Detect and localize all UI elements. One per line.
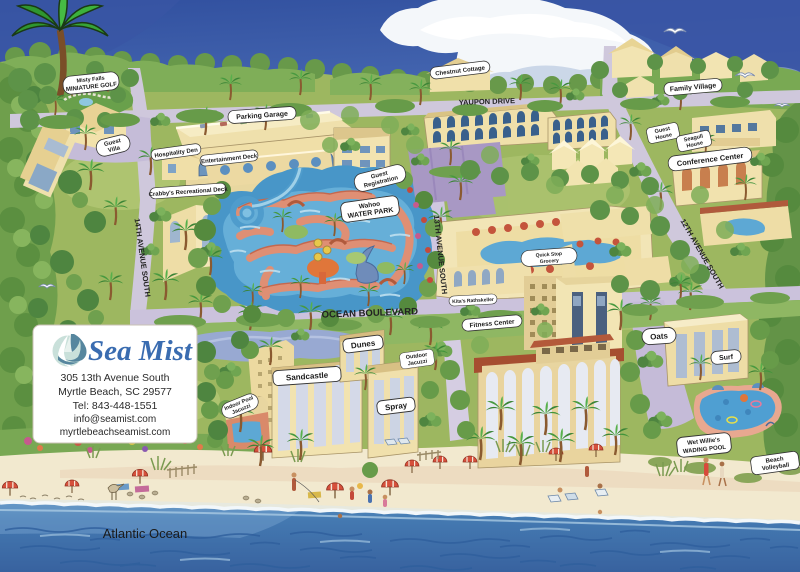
svg-text:Sea Mist: Sea Mist: [88, 335, 193, 367]
svg-text:Tel: 843-448-1551: Tel: 843-448-1551: [73, 400, 158, 412]
svg-text:Myrtle Beach, SC 29577: Myrtle Beach, SC 29577: [58, 386, 172, 398]
svg-text:info@seamist.com: info@seamist.com: [74, 414, 156, 425]
svg-text:Surf: Surf: [719, 354, 734, 362]
svg-text:305 13th Avenue South: 305 13th Avenue South: [61, 372, 170, 384]
svg-text:Oats: Oats: [650, 331, 669, 341]
svg-text:myrtlebeachseamist.com: myrtlebeachseamist.com: [60, 427, 171, 438]
svg-text:Atlantic Ocean: Atlantic Ocean: [103, 526, 188, 541]
